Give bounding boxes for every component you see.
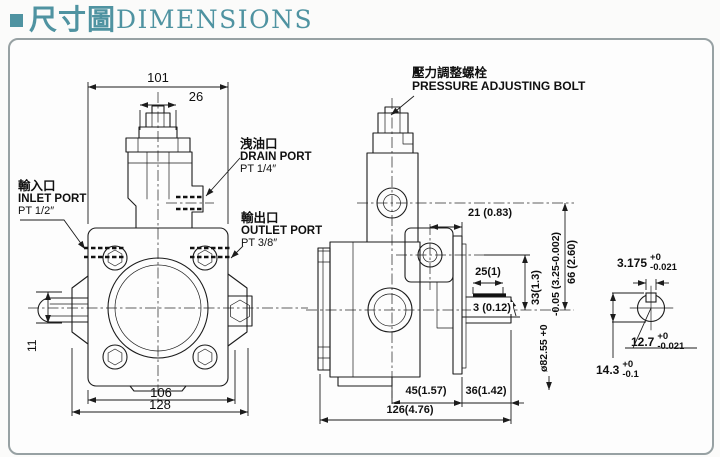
pressure-bolt-en: PRESSURE ADJUSTING BOLT — [412, 80, 585, 93]
dim-33: 33(1.3) — [530, 270, 542, 305]
outlet-port-label: 輸出口 OUTLET PORT PT 3/8″ — [241, 212, 322, 250]
dim-25: 25(1) — [475, 266, 501, 278]
pressure-bolt-cjk: 壓力調整螺栓 — [412, 67, 585, 80]
front-right-flange — [228, 274, 252, 346]
drain-port-thread: PT 1/4″ — [240, 163, 312, 176]
inlet-port-thread: PT 1/2″ — [18, 205, 86, 218]
shaft-dia-value: 12.7 — [631, 335, 654, 349]
side-view — [306, 96, 574, 424]
dim-3: 3 (0.12) — [471, 302, 513, 314]
pressure-bolt-label: 壓力調整螺栓 PRESSURE ADJUSTING BOLT — [412, 67, 585, 92]
dim-total-height: 14.3 +0 -0.1 — [596, 360, 639, 380]
outlet-port-cjk: 輸出口 — [241, 212, 322, 225]
dimensions-page: 尺寸圖 DIMENSIONS — [0, 0, 720, 457]
dim-101: 101 — [147, 70, 169, 85]
dim-shaft-dia-tolerance: -0.05 (3.25-0.002) — [550, 232, 562, 316]
dim-26: 26 — [189, 89, 203, 104]
dim-45: 45(1.57) — [406, 385, 447, 397]
dim-shaft-detail-dia: 12.7 +0 -0.021 — [631, 332, 684, 352]
drawing-linework — [0, 0, 720, 457]
side-end-plate — [318, 248, 330, 370]
dim-shaft-dia-value: ø82.55 +0 — [538, 324, 550, 372]
total-height-tol-lower: -0.1 — [622, 370, 638, 380]
side-valve-tower — [367, 107, 418, 242]
drain-port-en: DRAIN PORT — [240, 151, 312, 164]
shaft-dia-tol-lower: -0.021 — [657, 342, 684, 352]
dim-128: 128 — [149, 397, 171, 412]
dim-126: 126(4.76) — [384, 404, 435, 416]
drain-port-label: 洩油口 DRAIN PORT PT 1/4″ — [240, 138, 312, 176]
inlet-port-en: INLET PORT — [18, 193, 86, 206]
dim-21: 21 (0.83) — [468, 207, 512, 219]
dim-36: 36(1.42) — [464, 385, 509, 397]
outlet-port-thread: PT 3/8″ — [241, 237, 322, 250]
total-height-value: 14.3 — [596, 363, 619, 377]
side-body — [330, 242, 420, 377]
front-valve-tower — [126, 106, 214, 228]
inlet-port-label: 輸入口 INLET PORT PT 1/2″ — [18, 180, 86, 218]
front-shaft — [38, 276, 88, 344]
side-flange-plate — [453, 236, 462, 374]
inlet-port-cjk: 輸入口 — [18, 180, 86, 193]
dim-66: 66 (2.60) — [566, 240, 578, 284]
dim-11: 11 — [25, 340, 39, 352]
key-width-value: 3.175 — [617, 256, 647, 270]
dim-key-width: 3.175 +0 -0.021 — [617, 253, 677, 273]
front-bolts — [103, 246, 217, 369]
drain-port-cjk: 洩油口 — [240, 138, 312, 151]
outlet-port-en: OUTLET PORT — [241, 225, 322, 238]
key-width-tol-lower: -0.021 — [650, 263, 677, 273]
